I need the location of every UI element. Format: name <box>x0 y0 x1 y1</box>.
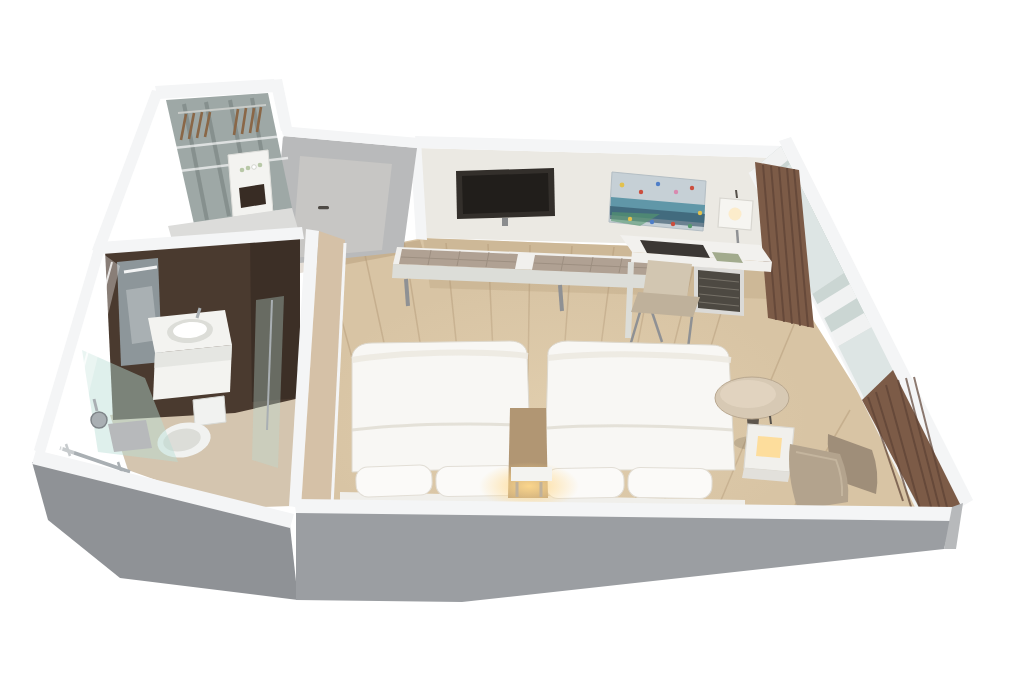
bed-right-pillow-2 <box>628 467 713 498</box>
shower-head <box>91 412 107 428</box>
cube-lamp-glow-panel <box>756 436 782 458</box>
nightstand-shelf <box>511 467 552 481</box>
abstract-artwork <box>609 172 706 231</box>
sink-vanity <box>148 308 232 400</box>
north-wall <box>410 136 783 247</box>
bed-left-duvet <box>352 341 531 472</box>
amenity-shelf <box>228 150 273 217</box>
tv-screen-glass <box>462 173 549 214</box>
floorplan-render <box>0 0 1024 683</box>
tv-mount <box>502 218 508 226</box>
shower-bench <box>108 420 152 452</box>
chair-backrest <box>643 260 692 298</box>
door-handle <box>318 206 329 209</box>
cube-lamp-finial <box>770 416 771 424</box>
armchair-seat <box>789 444 848 510</box>
bed-left-pillow-1 <box>355 465 432 498</box>
